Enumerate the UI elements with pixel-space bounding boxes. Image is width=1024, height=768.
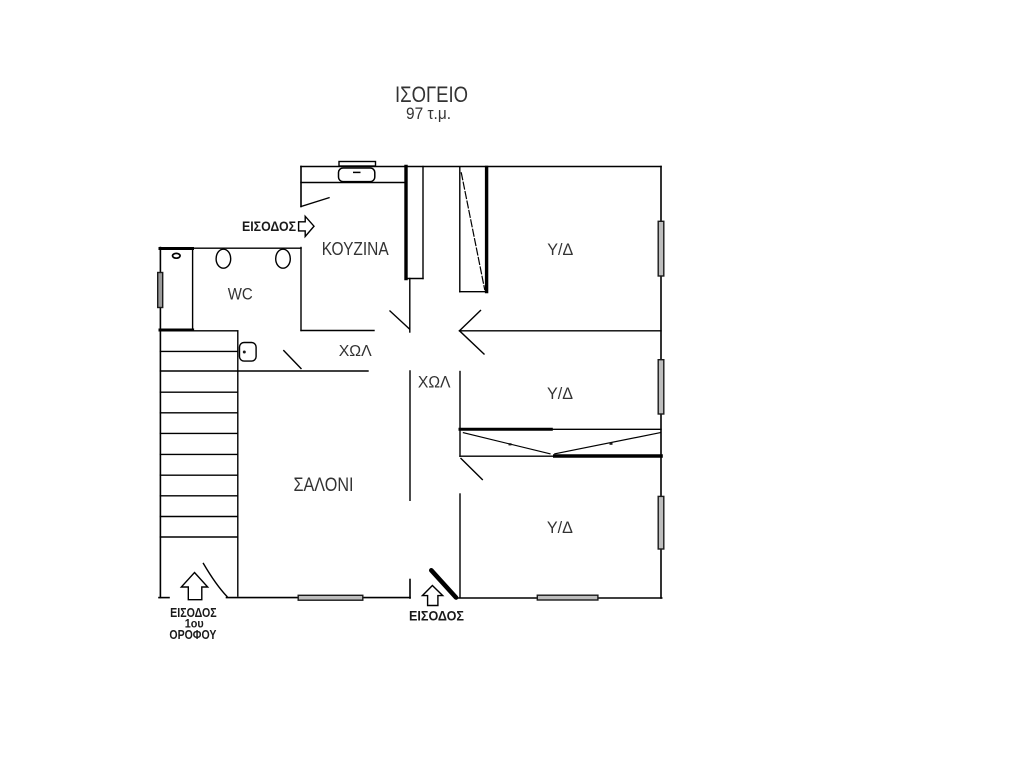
svg-text:ΕΙΣΟΔΟΣ: ΕΙΣΟΔΟΣ	[409, 608, 464, 624]
svg-text:ΧΩΛ: ΧΩΛ	[339, 343, 372, 360]
svg-text:ΧΩΛ: ΧΩΛ	[418, 373, 451, 392]
svg-text:Υ/Δ: Υ/Δ	[547, 518, 573, 537]
svg-text:Υ/Δ: Υ/Δ	[547, 384, 573, 403]
svg-text:97 τ.μ.: 97 τ.μ.	[406, 104, 451, 123]
svg-text:ΕΙΣΟΔΟΣ: ΕΙΣΟΔΟΣ	[242, 218, 296, 234]
svg-text:WC: WC	[228, 284, 253, 303]
svg-text:ΚΟΥΖΙΝΑ: ΚΟΥΖΙΝΑ	[322, 239, 389, 259]
svg-text:ΟΡΟΦΟΥ: ΟΡΟΦΟΥ	[169, 628, 217, 642]
svg-text:Υ/Δ: Υ/Δ	[547, 240, 573, 259]
svg-text:ΣΑΛΟΝΙ: ΣΑΛΟΝΙ	[294, 475, 354, 496]
